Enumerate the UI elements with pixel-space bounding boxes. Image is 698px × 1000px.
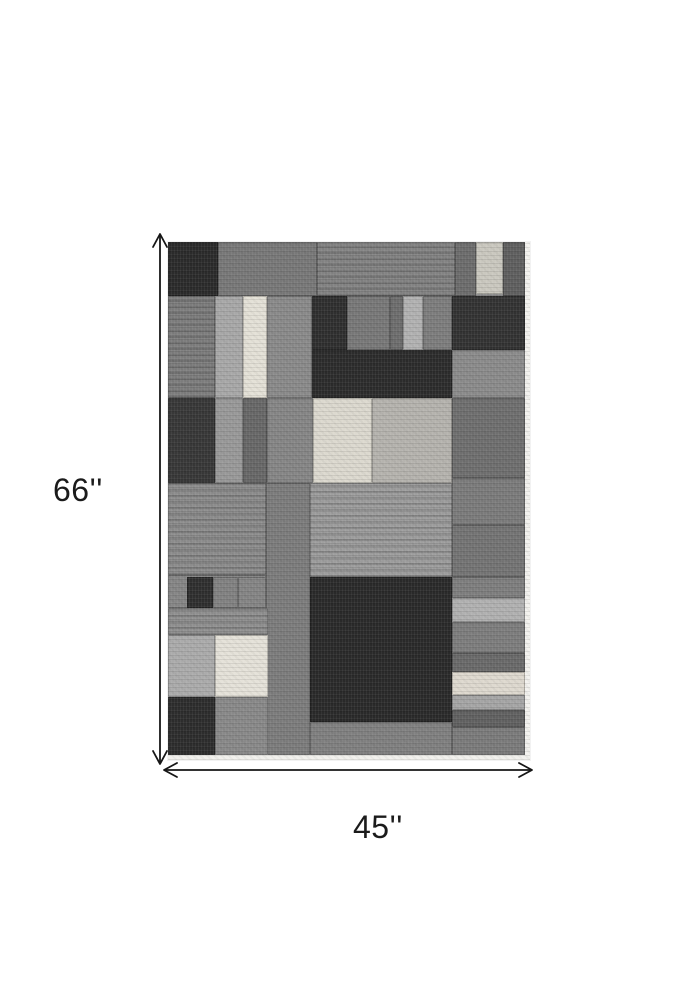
product-dimension-figure: 66'' 45'' <box>0 0 698 1000</box>
rug-patch <box>452 622 525 653</box>
rug-patch <box>215 296 243 398</box>
rug-patch <box>310 483 452 577</box>
rug-patch <box>390 296 403 350</box>
height-arrow <box>153 234 167 764</box>
rug-patch <box>452 525 525 577</box>
rug-patch <box>455 242 476 296</box>
rug-patch <box>187 577 213 608</box>
rug-patch <box>168 483 266 575</box>
rug-patch <box>168 608 268 635</box>
rug-binding-edge <box>168 755 530 760</box>
rug-patch <box>215 635 268 697</box>
rug-patch <box>266 483 310 755</box>
rug-patch <box>168 635 215 697</box>
rug-patch <box>403 296 423 350</box>
rug-patch <box>452 398 525 478</box>
rug-patch <box>452 296 525 350</box>
rug-patch <box>313 398 372 483</box>
rug-patch <box>218 242 317 296</box>
rug-patch <box>452 672 525 695</box>
rug-patch <box>423 296 452 350</box>
rug-patch <box>215 697 268 755</box>
rug-patch <box>503 242 525 296</box>
rug-patch <box>168 398 215 483</box>
rug-patch <box>168 697 215 755</box>
rug-patch <box>213 577 238 608</box>
rug-patch <box>312 350 452 398</box>
rug-patch <box>452 653 525 672</box>
rug-patch <box>215 398 243 483</box>
height-dimension-label: 66'' <box>53 474 103 506</box>
rug-patch <box>452 478 525 525</box>
rug-patch <box>476 242 503 294</box>
rug-patch <box>168 296 215 398</box>
rug-patch <box>347 296 390 350</box>
rug-patch <box>238 577 266 608</box>
rug-patch <box>310 577 452 722</box>
rug-patch <box>310 722 452 755</box>
rug-patch <box>317 242 455 296</box>
rug-patch <box>243 296 267 398</box>
rug-patch <box>452 350 525 398</box>
rug-patch <box>452 577 525 598</box>
width-dimension-label: 45'' <box>353 811 403 843</box>
rug-patch <box>452 727 525 755</box>
rug-patch <box>312 296 347 350</box>
width-arrow <box>164 763 532 777</box>
rug-patch <box>452 598 525 622</box>
rug-binding-edge <box>525 242 530 760</box>
rug-patch <box>168 242 218 296</box>
rug-patch <box>372 398 452 483</box>
rug-patch <box>452 710 525 727</box>
rug-patch <box>267 296 312 398</box>
rug-image <box>168 242 530 760</box>
rug-patch <box>267 398 313 483</box>
rug-patch <box>243 398 267 483</box>
rug-patch <box>452 695 525 710</box>
